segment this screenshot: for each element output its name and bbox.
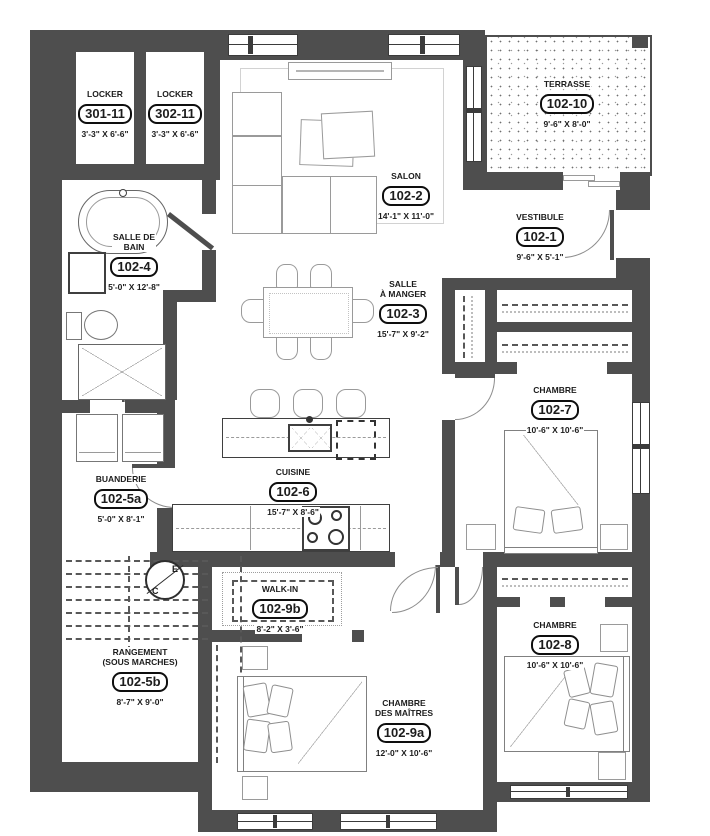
stair-dashed-line	[66, 625, 208, 627]
faucet-icon	[119, 189, 127, 197]
electrical-panel-symbol: E C	[145, 560, 185, 600]
wall	[632, 35, 648, 48]
wall	[440, 552, 455, 567]
wall	[483, 567, 497, 832]
room-label-cuisine: CUISINE 102-6 15'-7" X 8'-6"	[257, 462, 329, 521]
room-dims: 14'-1" X 11'-0"	[377, 211, 435, 221]
room-name: CHAMBRE	[532, 385, 577, 395]
room-label-chambre-7: CHAMBRE 102-7 10'-6" X 10'-6"	[515, 380, 595, 439]
counter-division	[250, 506, 251, 550]
stair-dashed-line	[66, 612, 208, 614]
room-number-badge: 102-5b	[112, 672, 167, 692]
room-number-badge: 302-11	[148, 104, 202, 124]
wall	[442, 420, 455, 567]
wall	[442, 278, 455, 374]
closet-shelf-line	[502, 311, 628, 313]
room-label-rangement: RANGEMENT (SOUS MARCHES) 102-5b 8'-7" X …	[86, 647, 194, 711]
room-name: SALLE À MANGER	[379, 279, 427, 299]
dining-chair	[276, 336, 298, 360]
room-label-locker-302: LOCKER 302-11 3'-3" X 6'-6"	[142, 84, 208, 143]
window-mullion	[566, 787, 570, 797]
stair-dashed-line	[66, 586, 208, 588]
wall	[30, 762, 212, 792]
room-label-locker-301: LOCKER 301-11 3'-3" X 6'-6"	[72, 84, 138, 143]
closet-shelf-line	[463, 296, 465, 358]
room-name: VESTIBULE	[515, 212, 565, 222]
door-leaf	[167, 212, 214, 250]
room-number-badge: 102-9a	[377, 723, 431, 743]
room-label-terrasse: TERRASSE 102-10 9'-6" X 8'-0"	[529, 74, 605, 133]
wall	[616, 183, 650, 210]
window-mullion	[466, 108, 482, 113]
stair-dashed-line	[128, 556, 130, 652]
stair-dashed-line	[216, 645, 218, 763]
room-name: SALLE DE BAIN	[112, 232, 156, 252]
room-dims: 3'-3" X 6'-6"	[80, 129, 129, 139]
room-label-salle-de-bain: SALLE DE BAIN 102-4 5'-0" X 12'-8"	[102, 232, 166, 296]
kitchen-sink	[288, 424, 332, 452]
wall	[198, 567, 212, 832]
wall	[62, 400, 90, 413]
window-mullion	[420, 36, 425, 54]
room-number-badge: 102-7	[531, 400, 578, 420]
sofa-sectional	[232, 136, 282, 234]
wall	[483, 552, 650, 567]
wall	[125, 400, 175, 413]
room-dims: 8'-7" X 9'-0"	[115, 697, 164, 707]
room-dims: 5'-0" X 8'-1"	[96, 514, 145, 524]
closet-shelf-line	[471, 296, 473, 358]
closet-shelf-line	[502, 304, 628, 306]
sofa-sectional	[282, 176, 377, 234]
room-dims: 15'-7" X 9'-2"	[376, 329, 430, 339]
nightstand	[598, 752, 626, 780]
dining-chair	[241, 299, 265, 323]
stair-dashed-line	[66, 638, 208, 640]
bar-stool	[336, 389, 366, 418]
nightstand	[600, 624, 628, 652]
wall	[605, 597, 632, 607]
closet-shelf-line	[502, 344, 628, 346]
nightstand	[242, 776, 268, 800]
tv-screen	[296, 70, 384, 72]
room-number-badge: 102-8	[531, 635, 578, 655]
room-dims: 9'-6" X 8'-0"	[542, 119, 591, 129]
bed	[504, 430, 598, 554]
wall	[497, 597, 520, 607]
room-dims: 3'-3" X 6'-6"	[150, 129, 199, 139]
room-name: CUISINE	[275, 467, 311, 477]
room-number-badge: 102-6	[269, 482, 316, 502]
room-name: CHAMBRE	[532, 620, 577, 630]
bar-stool	[293, 389, 323, 418]
room-dims: 10'-6" X 10'-6"	[526, 425, 585, 435]
room-label-buanderie: BUANDERIE 102-5a 5'-0" X 8'-1"	[83, 469, 159, 528]
room-name: RANGEMENT (SOUS MARCHES)	[101, 647, 178, 667]
room-number-badge: 102-9b	[252, 599, 307, 619]
closet-shelf-line	[502, 351, 628, 353]
room-label-chambre-8: CHAMBRE 102-8 10'-6" X 10'-6"	[515, 615, 595, 674]
sofa-sectional	[232, 92, 282, 136]
room-dims: 12'-0" X 10'-6"	[375, 748, 434, 758]
window-mullion	[273, 815, 277, 828]
window	[466, 66, 482, 162]
room-name: TERRASSE	[543, 79, 591, 89]
room-number-badge: 102-3	[379, 304, 426, 324]
washer	[76, 414, 118, 462]
dishwasher	[336, 420, 376, 460]
room-label-chambre-des-maitres: CHAMBRE DES MAÎTRES 102-9a 12'-0" X 10'-…	[357, 698, 451, 762]
panel-letter-e: E	[172, 564, 178, 574]
room-name: LOCKER	[156, 89, 194, 99]
pillow	[512, 506, 545, 534]
counter-division	[360, 506, 361, 550]
wall	[352, 630, 364, 642]
pillow	[550, 506, 583, 534]
nightstand	[242, 646, 268, 670]
stove-burner	[307, 532, 318, 543]
room-label-vestibule: VESTIBULE 102-1 9'-6" X 5'-1"	[497, 207, 583, 266]
dining-chair	[310, 336, 332, 360]
dining-chair	[310, 264, 332, 288]
room-dims: 8'-2" X 3'-6"	[255, 624, 304, 634]
wall	[497, 322, 632, 332]
wall	[30, 30, 62, 792]
pillow	[267, 721, 293, 754]
stair-dashed-line	[66, 560, 208, 562]
wall	[202, 250, 216, 294]
room-label-walk-in: WALK-IN 102-9b 8'-2" X 3'-6"	[246, 579, 314, 638]
room-name: BUANDERIE	[95, 474, 148, 484]
wall	[485, 172, 563, 190]
wall	[607, 362, 632, 374]
faucet-icon	[306, 416, 313, 423]
stove-burner	[331, 510, 342, 521]
window-mullion	[633, 444, 649, 449]
nightstand	[600, 524, 628, 550]
dining-chair	[276, 264, 298, 288]
room-number-badge: 102-1	[516, 227, 563, 247]
room-dims: 15'-7" X 8'-6"	[266, 507, 320, 517]
shower	[78, 344, 166, 400]
dining-table-inner	[269, 293, 349, 334]
room-number-badge: 102-5a	[94, 489, 148, 509]
window-mullion	[386, 815, 390, 828]
wall	[442, 278, 650, 290]
door-arc	[455, 378, 495, 420]
room-name: WALK-IN	[261, 584, 299, 594]
wall	[632, 288, 650, 782]
coffee-table	[321, 111, 375, 160]
dryer	[122, 414, 164, 462]
window-mullion	[248, 36, 253, 54]
counter-line	[176, 528, 386, 529]
room-name: SALON	[390, 171, 422, 181]
room-label-salon: SALON 102-2 14'-1" X 11'-0"	[366, 166, 446, 225]
closet-shelf-line	[502, 578, 628, 580]
vanity-sink	[68, 252, 106, 294]
room-number-badge: 102-4	[110, 257, 157, 277]
room-dims: 5'-0" X 12'-8"	[107, 282, 161, 292]
toilet-bowl	[84, 310, 118, 340]
door-arc	[459, 567, 483, 605]
room-dims: 10'-6" X 10'-6"	[526, 660, 585, 670]
floor-plan: E C LOCKER 301-11 3'-3" X 6'-6" LOCKER 3…	[0, 0, 710, 836]
bar-stool	[250, 389, 280, 418]
wall	[550, 597, 565, 607]
room-label-salle-a-manger: SALLE À MANGER 102-3 15'-7" X 9'-2"	[368, 279, 438, 343]
room-number-badge: 102-10	[540, 94, 594, 114]
stove-burner	[328, 529, 344, 545]
sliding-door-panel	[588, 181, 620, 187]
window	[228, 34, 298, 56]
closet-shelf-line	[502, 585, 628, 587]
panel-letter-c: C	[152, 586, 159, 596]
stair-dashed-line	[66, 599, 208, 601]
room-number-badge: 102-2	[382, 186, 429, 206]
stair-dashed-line	[66, 573, 208, 575]
room-name: CHAMBRE DES MAÎTRES	[374, 698, 434, 718]
door-leaf	[610, 210, 614, 260]
room-name: LOCKER	[86, 89, 124, 99]
nightstand	[466, 524, 496, 550]
room-number-badge: 301-11	[78, 104, 132, 124]
room-dims: 9'-6" X 5'-1"	[515, 252, 564, 262]
wall	[202, 178, 216, 214]
toilet-tank	[66, 312, 82, 340]
